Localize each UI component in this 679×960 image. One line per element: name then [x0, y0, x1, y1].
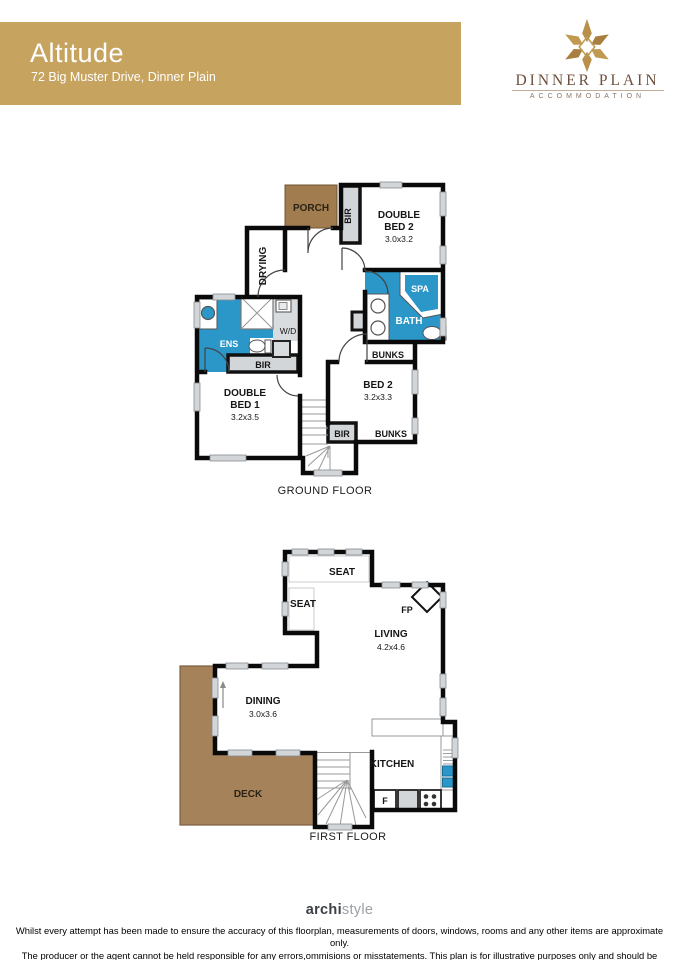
footer-disclaimer: Whilst every attempt has been made to en… — [14, 925, 665, 960]
cooktop — [420, 790, 441, 810]
dining-label: DINING — [246, 696, 281, 707]
ens-vanity — [199, 299, 217, 329]
bed2-ground-label: BED 2 — [363, 380, 393, 391]
header-banner: Altitude 72 Big Muster Drive, Dinner Pla… — [0, 22, 461, 105]
ens-toilet — [249, 340, 271, 353]
bir-stairs-label: BIR — [334, 429, 350, 439]
bunks-upper-label: BUNKS — [372, 350, 404, 360]
shower — [241, 297, 273, 329]
living-label: LIVING — [374, 629, 408, 640]
brand-name: DINNER PLAIN — [500, 72, 675, 90]
kitchen-bench — [372, 719, 455, 790]
stairs-first — [315, 753, 372, 827]
bath-vanity — [367, 294, 389, 342]
archistyle-logo: archistyle — [0, 902, 679, 918]
bunks-lower-label: BUNKS — [375, 429, 407, 439]
seat-top-label: SEAT — [329, 567, 355, 578]
first-floor-caption: FIRST FLOOR — [278, 831, 418, 843]
entry-arrow — [220, 681, 226, 708]
living-dim: 4.2x4.6 — [377, 642, 405, 652]
bath-label: BATH — [395, 316, 422, 327]
washer-dryer-icon — [276, 300, 291, 312]
ens-label: ENS — [220, 339, 239, 349]
double-bed2-dim: 3.0x3.2 — [385, 234, 413, 244]
double-bed2-label2: BED 2 — [384, 222, 414, 233]
brand-logo: DINNER PLAIN ACCOMMODATION — [500, 12, 675, 107]
double-bed2-label: DOUBLE — [378, 210, 421, 221]
porch-label: PORCH — [293, 203, 329, 214]
wd-label: W/D — [280, 326, 297, 336]
drying-label: DRYING — [258, 247, 269, 286]
dining-dim: 3.0x3.6 — [249, 709, 277, 719]
bir-bed2-label: BIR — [343, 208, 353, 224]
archistyle-light: style — [342, 902, 373, 918]
double-bed1-label: DOUBLE — [224, 388, 267, 399]
first-floor-plan: SEAT SEAT FP LIVING 4.2x4.6 DINING 3.0x3… — [170, 545, 465, 837]
disclaimer-line-1: Whilst every attempt has been made to en… — [14, 925, 665, 950]
double-bed1-label2: BED 1 — [230, 400, 260, 411]
archistyle-bold: archi — [306, 902, 342, 918]
deck-label: DECK — [234, 789, 263, 800]
ground-floor-caption: GROUND FLOOR — [245, 485, 405, 497]
bir-ens-label: BIR — [255, 360, 271, 370]
snowflake-icon — [555, 16, 619, 74]
kitchen-label: KITCHEN — [370, 759, 414, 770]
pantry-unit — [398, 790, 418, 810]
spa-label: SPA — [411, 284, 429, 294]
brand-tagline: ACCOMMODATION — [500, 93, 675, 100]
page-title: Altitude — [30, 38, 124, 69]
disclaimer-line-2: The producer or the agent cannot be held… — [14, 950, 665, 960]
fridge-label: F — [382, 796, 388, 806]
ground-floor-plan: PORCH BIR DOUBLE BED 2 3.0x3.2 DRYING SP… — [185, 175, 470, 480]
seat-left-label: SEAT — [290, 599, 316, 610]
deck-area — [180, 666, 315, 825]
page-subtitle: 72 Big Muster Drive, Dinner Plain — [31, 70, 216, 84]
double-bed1-dim: 3.2x3.5 — [231, 412, 259, 422]
bed2-ground-dim: 3.2x3.3 — [364, 392, 392, 402]
page: Altitude 72 Big Muster Drive, Dinner Pla… — [0, 0, 679, 960]
brand-divider — [512, 90, 664, 91]
fireplace-label: FP — [401, 605, 413, 615]
